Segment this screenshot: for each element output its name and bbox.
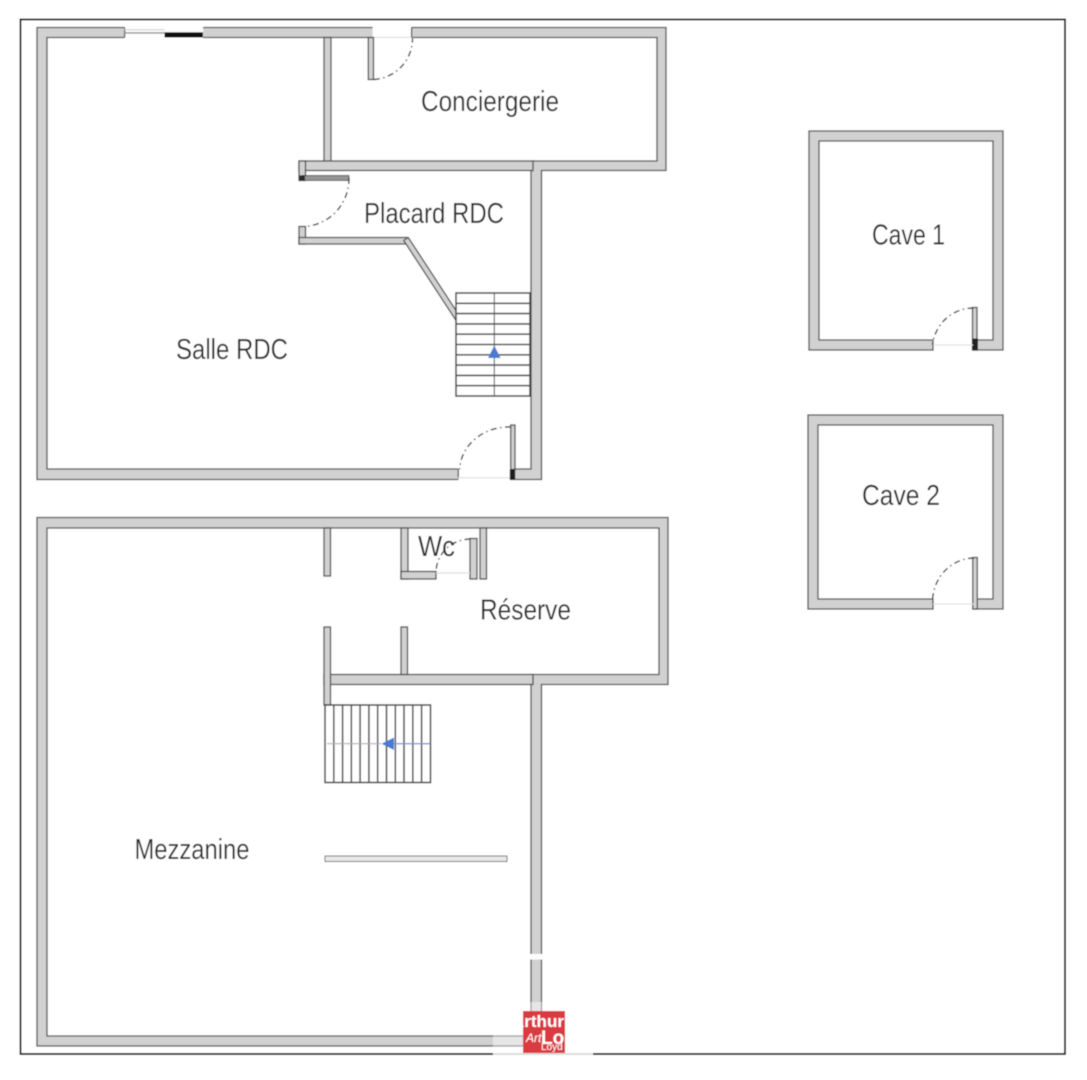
svg-text:Placard RDC: Placard RDC: [364, 198, 504, 230]
svg-text:Wc: Wc: [418, 531, 455, 563]
svg-text:Conciergerie: Conciergerie: [421, 86, 559, 118]
svg-text:Salle RDC: Salle RDC: [176, 334, 288, 366]
svg-text:Cave 1: Cave 1: [872, 220, 945, 252]
svg-text:Réserve: Réserve: [480, 595, 571, 627]
svg-text:Art: Art: [525, 1031, 542, 1045]
svg-text:Loyd: Loyd: [541, 1042, 563, 1053]
svg-text:Mezzanine: Mezzanine: [135, 834, 250, 866]
svg-text:Cave 2: Cave 2: [862, 480, 940, 512]
